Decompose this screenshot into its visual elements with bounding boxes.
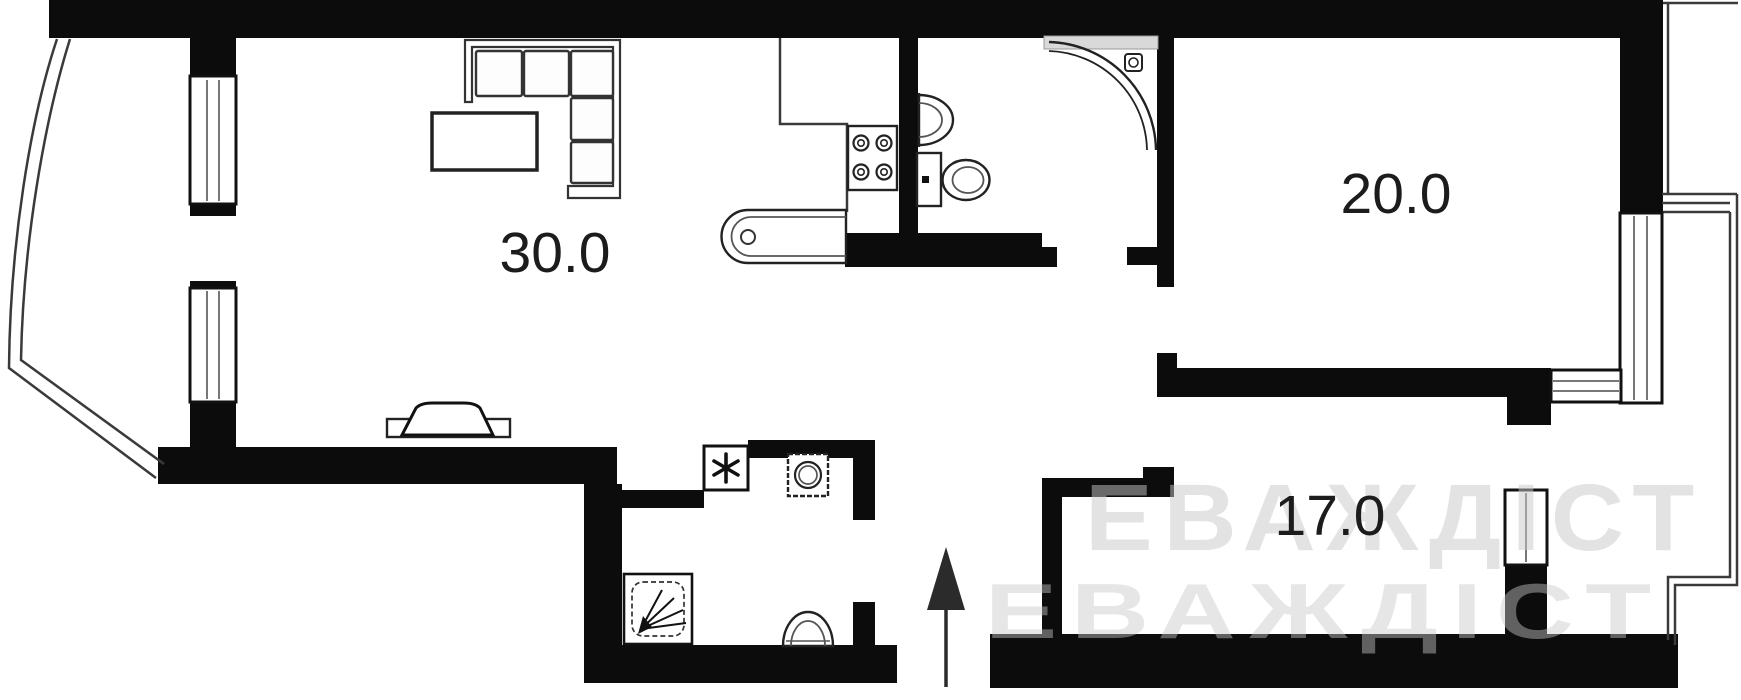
balcony-left-outline: [9, 39, 164, 478]
wash-basin-icon: [919, 93, 953, 147]
area-label-bedroom: 20.0: [1341, 162, 1452, 226]
area-label-second-room: 17.0: [1275, 484, 1386, 548]
toilet-2-icon: [783, 612, 833, 646]
corner-shower-icon: [1044, 36, 1158, 150]
vent-shaft-icon: [704, 446, 748, 490]
tv-stand-icon: [387, 403, 510, 437]
watermark-line-1: ЕВАЖДІСТ: [1085, 465, 1705, 571]
floor-plan-canvas: ЕВАЖДІСТ ЕВАЖДІСТ 30.0 20.0 17.0: [0, 0, 1741, 700]
floor-plan: ЕВАЖДІСТ ЕВАЖДІСТ 30.0 20.0 17.0: [0, 0, 1741, 700]
area-label-living-room: 30.0: [500, 221, 611, 285]
watermark-line-2: ЕВАЖДІСТ: [985, 567, 1665, 655]
toilet-icon: [917, 153, 990, 206]
window-right-wall: [1620, 213, 1662, 403]
window-left-top: [190, 76, 236, 204]
entrance-arrow-icon: [927, 547, 965, 687]
stove-icon: [848, 126, 897, 190]
kitchen-counter-outline: [780, 38, 847, 212]
window-left-bottom: [190, 288, 236, 402]
shower-tray-icon: [624, 574, 692, 644]
window-bedroom-bottom: [1551, 370, 1621, 402]
kitchen-island-sink-icon: [722, 210, 846, 263]
washing-machine-icon: [788, 454, 828, 496]
coffee-table-icon: [432, 113, 537, 170]
